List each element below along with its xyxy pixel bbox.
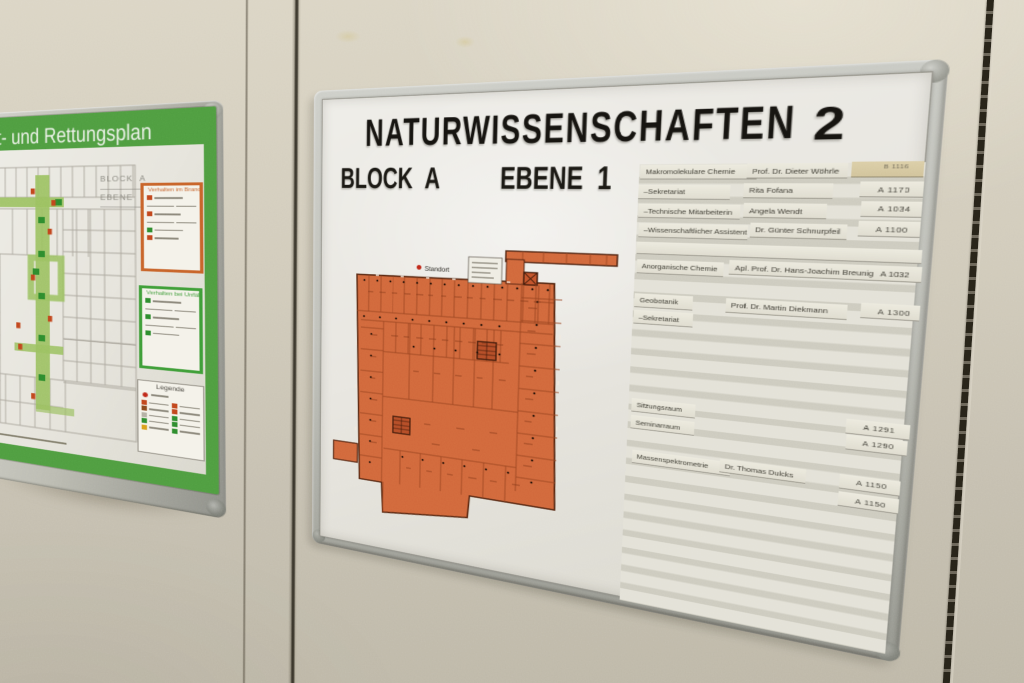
svg-text:Standort: Standort bbox=[425, 266, 450, 274]
